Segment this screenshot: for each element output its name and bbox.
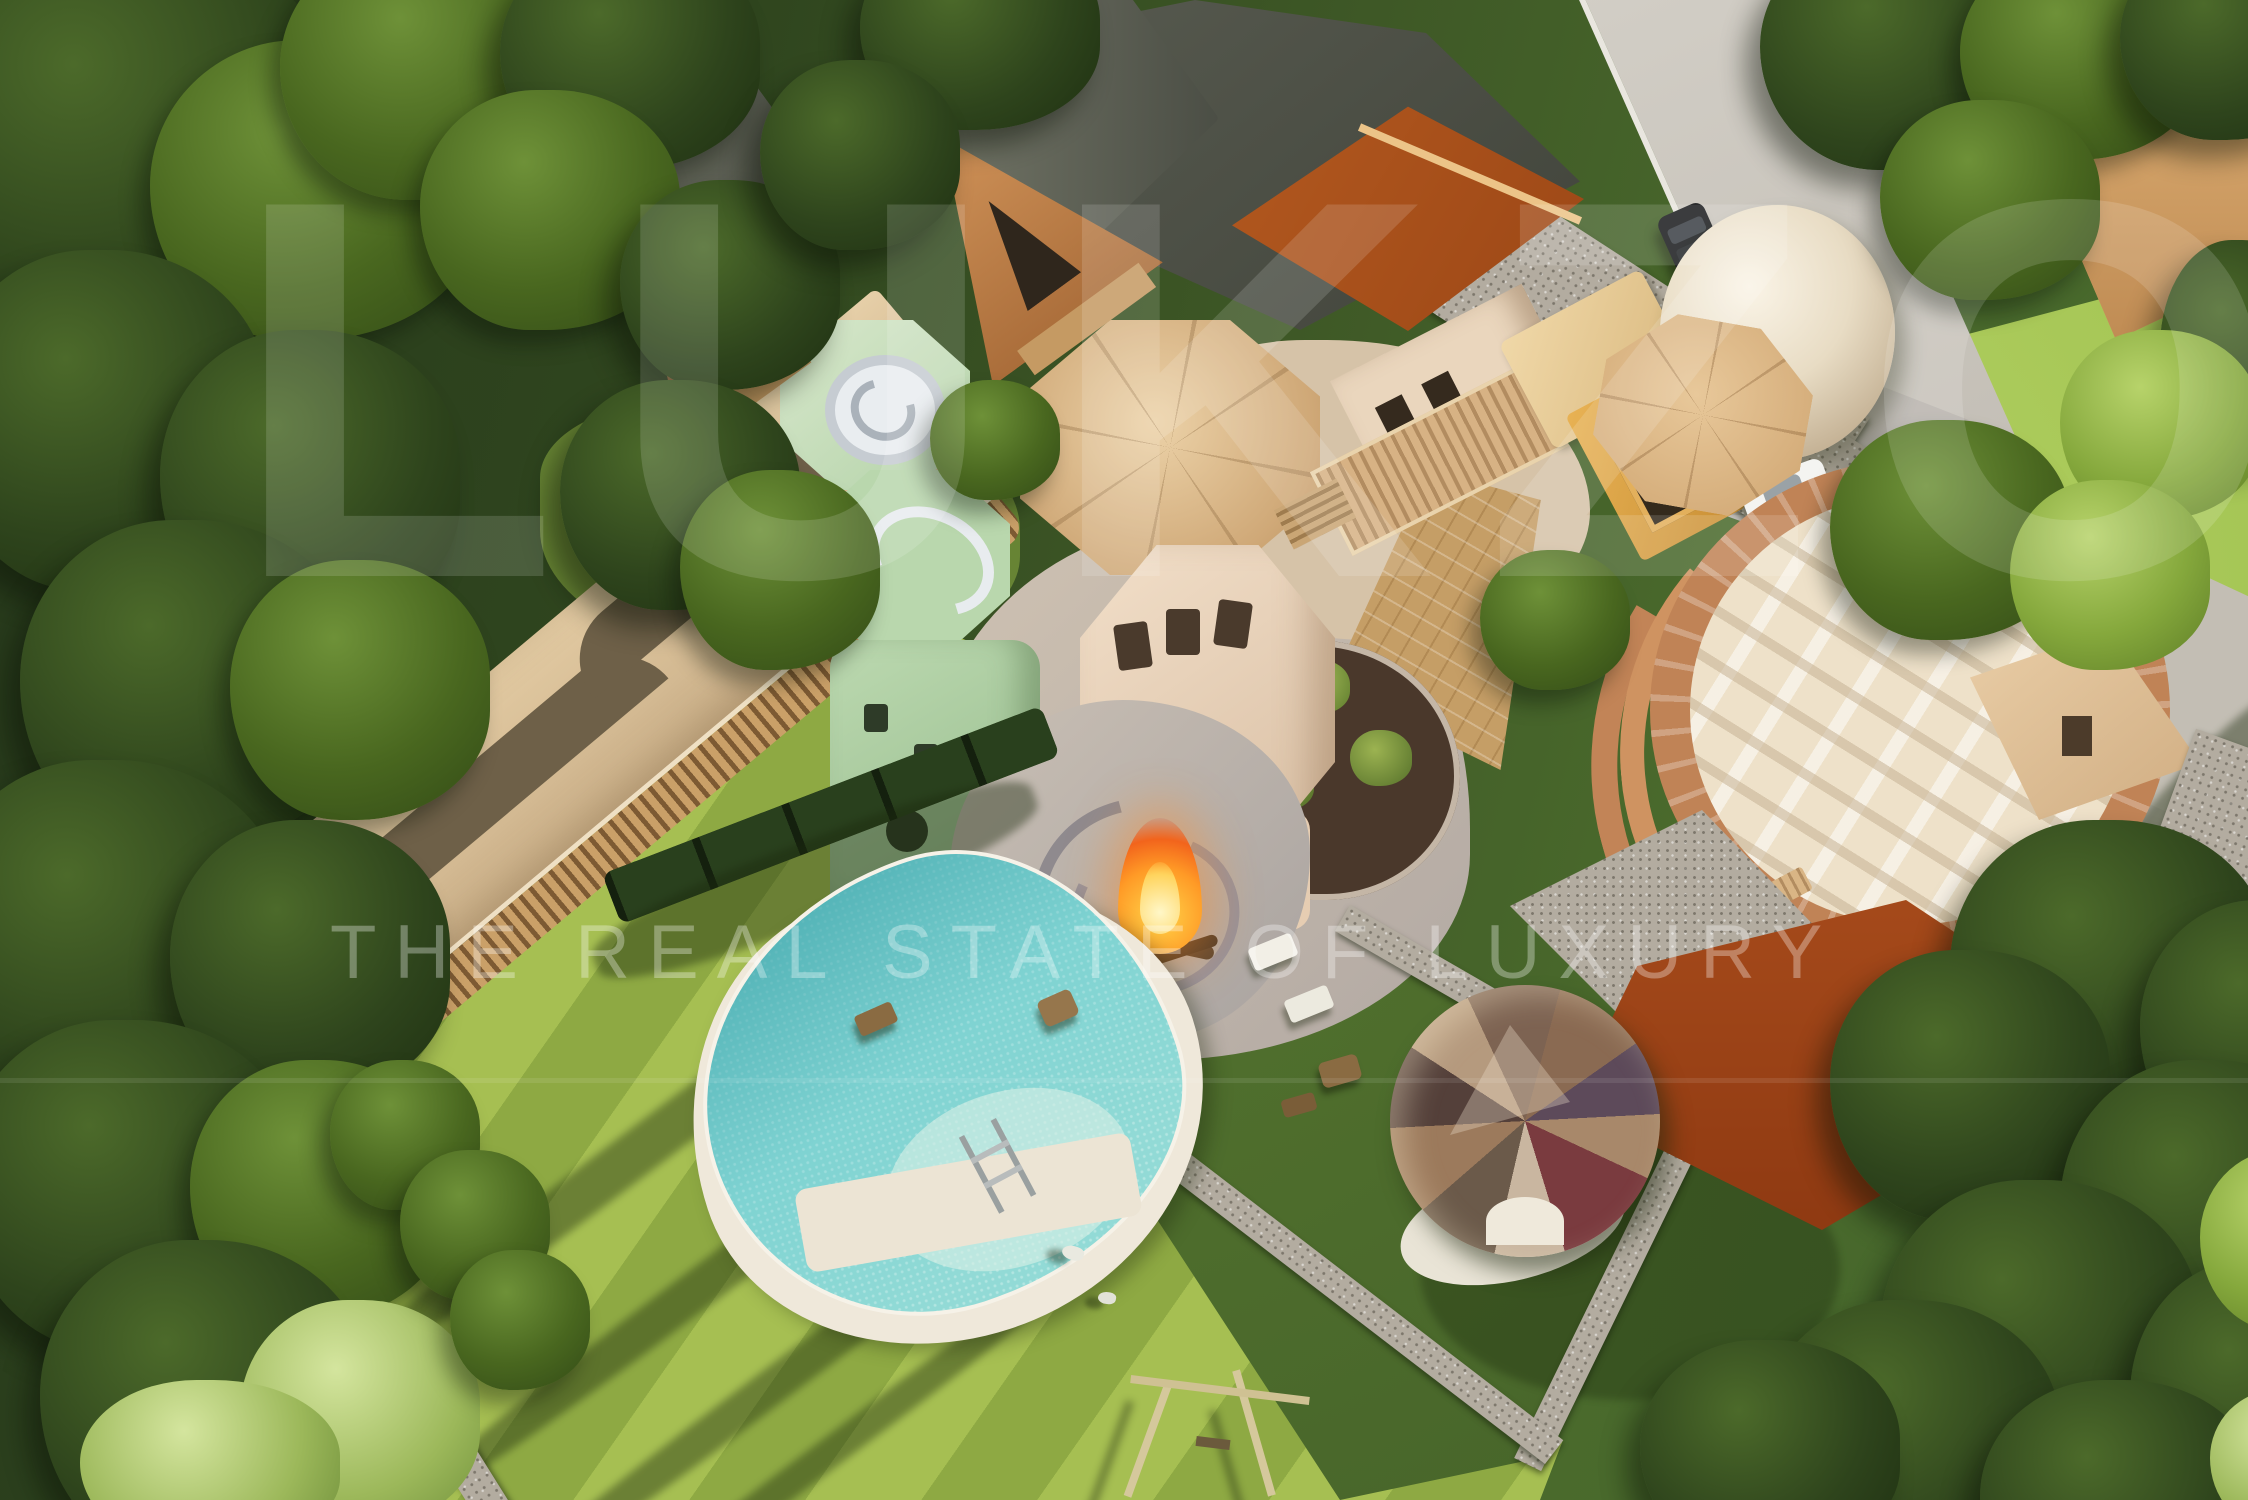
ladder-rung: [970, 1139, 1010, 1164]
swing-leg: [1124, 1382, 1173, 1497]
tree: [450, 1250, 590, 1390]
watermark-brand: LUKZO: [230, 120, 2248, 660]
aerial-render-scene: LUKZO THE REAL STATE OF LUXURY: [0, 0, 2248, 1500]
watermark-rule: [0, 1078, 2248, 1083]
tower-window: [864, 704, 888, 732]
swing-seat: [1196, 1436, 1231, 1450]
ladder-rung: [983, 1164, 1023, 1189]
geodesic-dome-tent: [1390, 985, 1660, 1257]
watermark-tagline: THE REAL STATE OF LUXURY: [330, 915, 1840, 991]
dome-door: [1486, 1197, 1564, 1245]
wedge-window: [2062, 716, 2092, 756]
swing-set: [1100, 1360, 1340, 1500]
